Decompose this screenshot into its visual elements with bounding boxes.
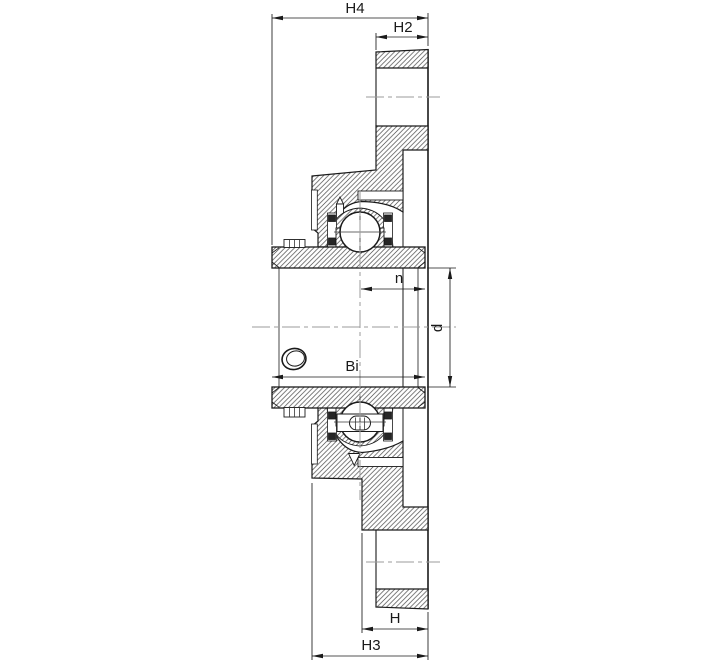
dim-label-d: d	[429, 324, 446, 332]
housing-spigot-land-bottom	[312, 424, 318, 464]
seal-lip-icon	[385, 412, 392, 419]
flange-bottom-section	[376, 589, 428, 609]
housing-spigot-land-top	[312, 190, 318, 230]
locking-collar-bottom	[284, 408, 305, 418]
dim-label-h2: H2	[393, 19, 412, 36]
flange-top-section	[376, 50, 428, 69]
seal-lip-icon	[385, 433, 392, 440]
seal-lip-icon	[385, 215, 392, 222]
bearing-section-drawing: H4 H2 n Bi d H H3	[0, 0, 720, 670]
drawing-canvas: H4 H2 n Bi d H H3	[0, 0, 720, 670]
dim-label-h: H	[390, 610, 401, 627]
set-screw-hole	[280, 346, 308, 372]
seat-land-top	[358, 191, 403, 200]
seat-land-bottom	[358, 458, 403, 467]
dim-label-n: n	[395, 270, 403, 287]
sleeve-top-band	[272, 247, 425, 268]
seal-lip-icon	[329, 215, 336, 222]
seal-lip-icon	[385, 238, 392, 245]
dim-label-h4: H4	[345, 0, 364, 17]
seal-lip-icon	[329, 238, 336, 245]
seal-lip-icon	[329, 412, 336, 419]
centerlines	[252, 97, 456, 562]
housing	[312, 126, 429, 530]
seal-lip-icon	[329, 433, 336, 440]
dim-label-h3: H3	[361, 637, 380, 654]
locking-collar-top	[284, 240, 305, 248]
shaft-sleeve	[272, 240, 425, 418]
dim-label-bi: Bi	[345, 358, 358, 375]
